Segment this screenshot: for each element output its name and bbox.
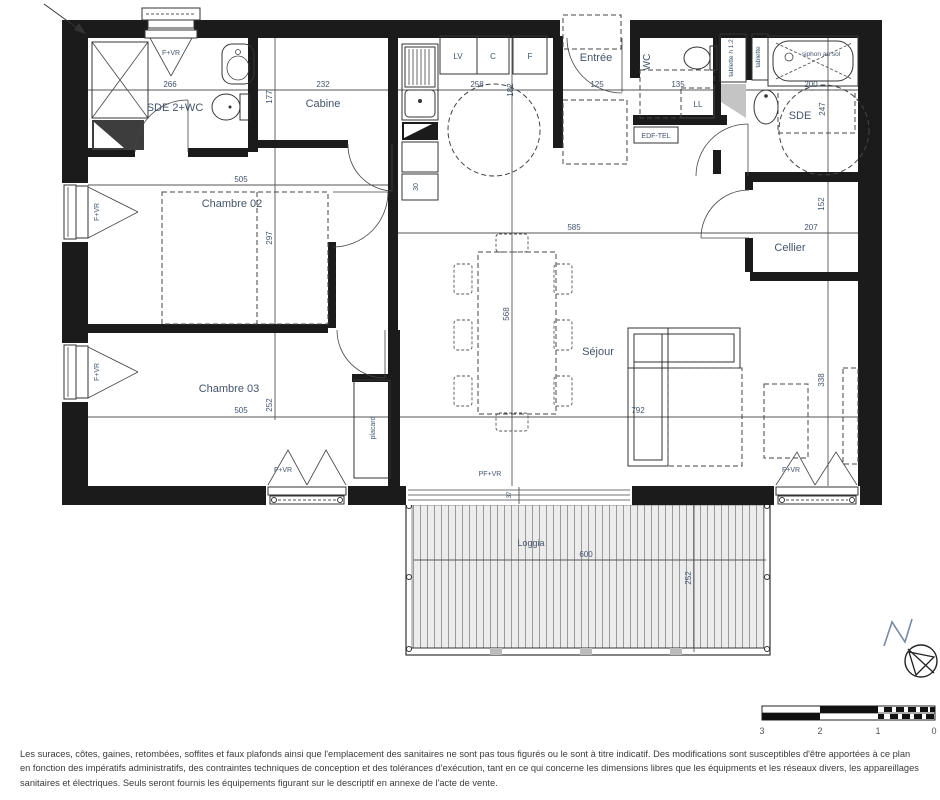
appliance-f: F (528, 52, 533, 61)
bay-label-pfvr: PF+VR (479, 471, 502, 478)
dim-wc-w: 135 (671, 80, 685, 89)
dim-kitchen-unit: 30 (413, 183, 420, 191)
dim-sejour-w: 585 (567, 223, 581, 232)
fixture-tablette: tablette (755, 46, 762, 68)
room-label-sde2wc: SDE 2+WC (147, 102, 204, 114)
dim-sde-d: 247 (818, 102, 827, 116)
dim-ch03-w: 505 (234, 406, 248, 415)
dim-cellier-w: 207 (804, 223, 818, 232)
window-left-chambre03: F+VR (62, 343, 138, 402)
scale-tick-3: 3 (759, 726, 764, 736)
dim-cabine-w: 232 (316, 80, 330, 89)
dim-sde2wc-w: 266 (163, 80, 177, 89)
chambre03: Chambre 03 placard (199, 380, 390, 478)
fixture-ll: LL (694, 100, 703, 109)
dim-ch02-w: 505 (234, 175, 248, 184)
window-label-fvr-sejour: F+VR (782, 467, 800, 474)
appliance-lv: LV (453, 52, 463, 61)
kitchen: 30 LV C F (402, 36, 547, 200)
dim-ch03-d: 252 (265, 398, 274, 412)
fixture-edf-tel: EDF-TEL (641, 133, 670, 140)
room-label-chambre03: Chambre 03 (199, 383, 260, 395)
dimension-labels: 266 232 258 125 135 200 177 182 247 505 … (163, 80, 827, 415)
scale-tick-0: 0 (931, 726, 936, 736)
closet-label-placard: placard (370, 416, 377, 439)
floor-plan: Loggia 600 252 (0, 0, 940, 745)
floor-plan-svg: Loggia 600 252 (0, 0, 940, 745)
dim-cellier-d: 152 (817, 197, 826, 211)
dim-sejour-l: 792 (631, 406, 645, 415)
north-arrow-icon (884, 619, 937, 677)
window-label-fvr-ch03: F+VR (94, 363, 101, 381)
dim-cabine-d: 177 (265, 90, 274, 104)
scale-tick-2: 2 (817, 726, 822, 736)
room-label-entree: Entrée (580, 52, 612, 64)
dim-ch02-d: 297 (265, 231, 274, 245)
entree: Entrée (563, 52, 627, 164)
dim-kitchen-gap: 182 (506, 83, 515, 97)
room-label-cellier: Cellier (774, 242, 806, 254)
note-siphon: siphon au sol (802, 51, 841, 58)
dim-sejour-r: 338 (817, 373, 826, 387)
window-label-fvr-ch02: F+VR (94, 203, 101, 221)
disclaimer-text: Les suraces, côtes, gaines, retombées, s… (20, 747, 922, 790)
wc: WC LL EDF-TEL (634, 46, 717, 143)
dim-kitchen-w: 258 (470, 80, 484, 89)
sejour: Séjour (454, 234, 858, 466)
window-bottom-sejour: F+VR (774, 452, 860, 505)
dim-entree-w: 125 (590, 80, 604, 89)
dim-sde-w: 200 (804, 80, 818, 89)
dim-bay: 37 (506, 491, 513, 499)
dim-sejour-d: 568 (502, 307, 511, 321)
room-label-loggia: Loggia (517, 538, 544, 548)
scale-tick-1: 1 (875, 726, 880, 736)
room-label-chambre02: Chambre 02 (202, 198, 263, 210)
bay-window-pfvr: PF+VR 37 (406, 471, 632, 505)
chambre02: Chambre 02 (162, 192, 328, 324)
scale-bar: 3 2 1 0 (759, 706, 936, 736)
room-label-wc: WC (642, 54, 653, 71)
room-label-cabine: Cabine (306, 98, 341, 110)
dim-loggia-depth: 252 (684, 571, 693, 585)
loggia: Loggia 600 252 (406, 503, 770, 655)
room-label-sde: SDE (789, 110, 812, 122)
window-bottom-chambre03: F+VR (266, 450, 348, 505)
window-left-chambre02: F+VR (62, 183, 138, 242)
appliance-c: C (490, 52, 496, 61)
window-label-fvr-top: F+VR (162, 50, 180, 57)
dim-loggia-width: 600 (579, 550, 593, 559)
fixture-tablette-h12: tablette h 1.2 (728, 39, 735, 77)
window-top-sde2wc: F+VR (142, 8, 200, 76)
room-label-sejour: Séjour (582, 346, 614, 358)
window-label-fvr-ch03-bottom: F+VR (274, 467, 292, 474)
